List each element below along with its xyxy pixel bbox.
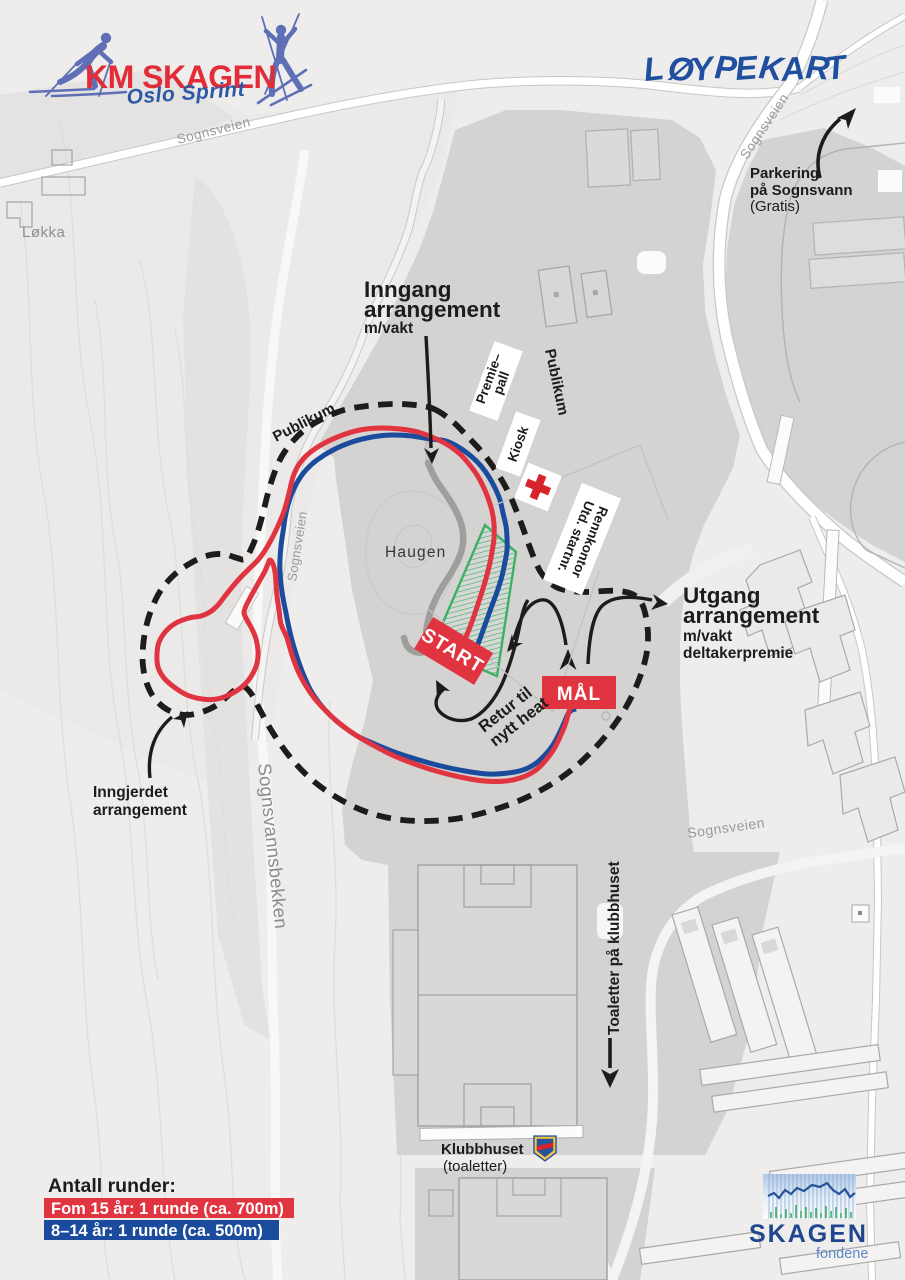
svg-text:arrangement: arrangement [364,297,501,322]
svg-text:arrangement: arrangement [683,603,820,628]
svg-text:SKAGEN: SKAGEN [749,1220,868,1248]
svg-text:Fom 15 år: 1 runde (ca. 700m): Fom 15 år: 1 runde (ca. 700m) [51,1200,284,1218]
svg-text:A: A [778,49,806,88]
svg-text:(toaletter): (toaletter) [443,1158,507,1175]
svg-text:Parkering: Parkering [750,165,819,182]
svg-text:L: L [642,49,666,88]
svg-text:fondene: fondene [816,1246,868,1262]
svg-text:m/vakt: m/vakt [683,628,732,645]
svg-text:Haugen: Haugen [385,544,447,561]
svg-text:MÅL: MÅL [557,684,601,705]
svg-text:Klubbhuset: Klubbhuset [441,1141,524,1158]
svg-text:Inngjerdet: Inngjerdet [93,784,168,801]
svg-text:på Sognsvann: på Sognsvann [750,182,853,199]
svg-text:arrangement: arrangement [93,802,187,819]
svg-text:8–14 år: 1 runde (ca. 500m): 8–14 år: 1 runde (ca. 500m) [51,1222,263,1240]
svg-text:Antall runder:: Antall runder: [48,1175,176,1197]
svg-text:Toaletter på klubbhuset: Toaletter på klubbhuset [606,861,623,1035]
svg-text:(Gratis): (Gratis) [750,198,800,215]
svg-text:E: E [734,48,760,87]
svg-text:m/vakt: m/vakt [364,320,413,337]
svg-text:Løkka: Løkka [22,224,66,241]
svg-text:deltakerpremie: deltakerpremie [683,645,794,662]
